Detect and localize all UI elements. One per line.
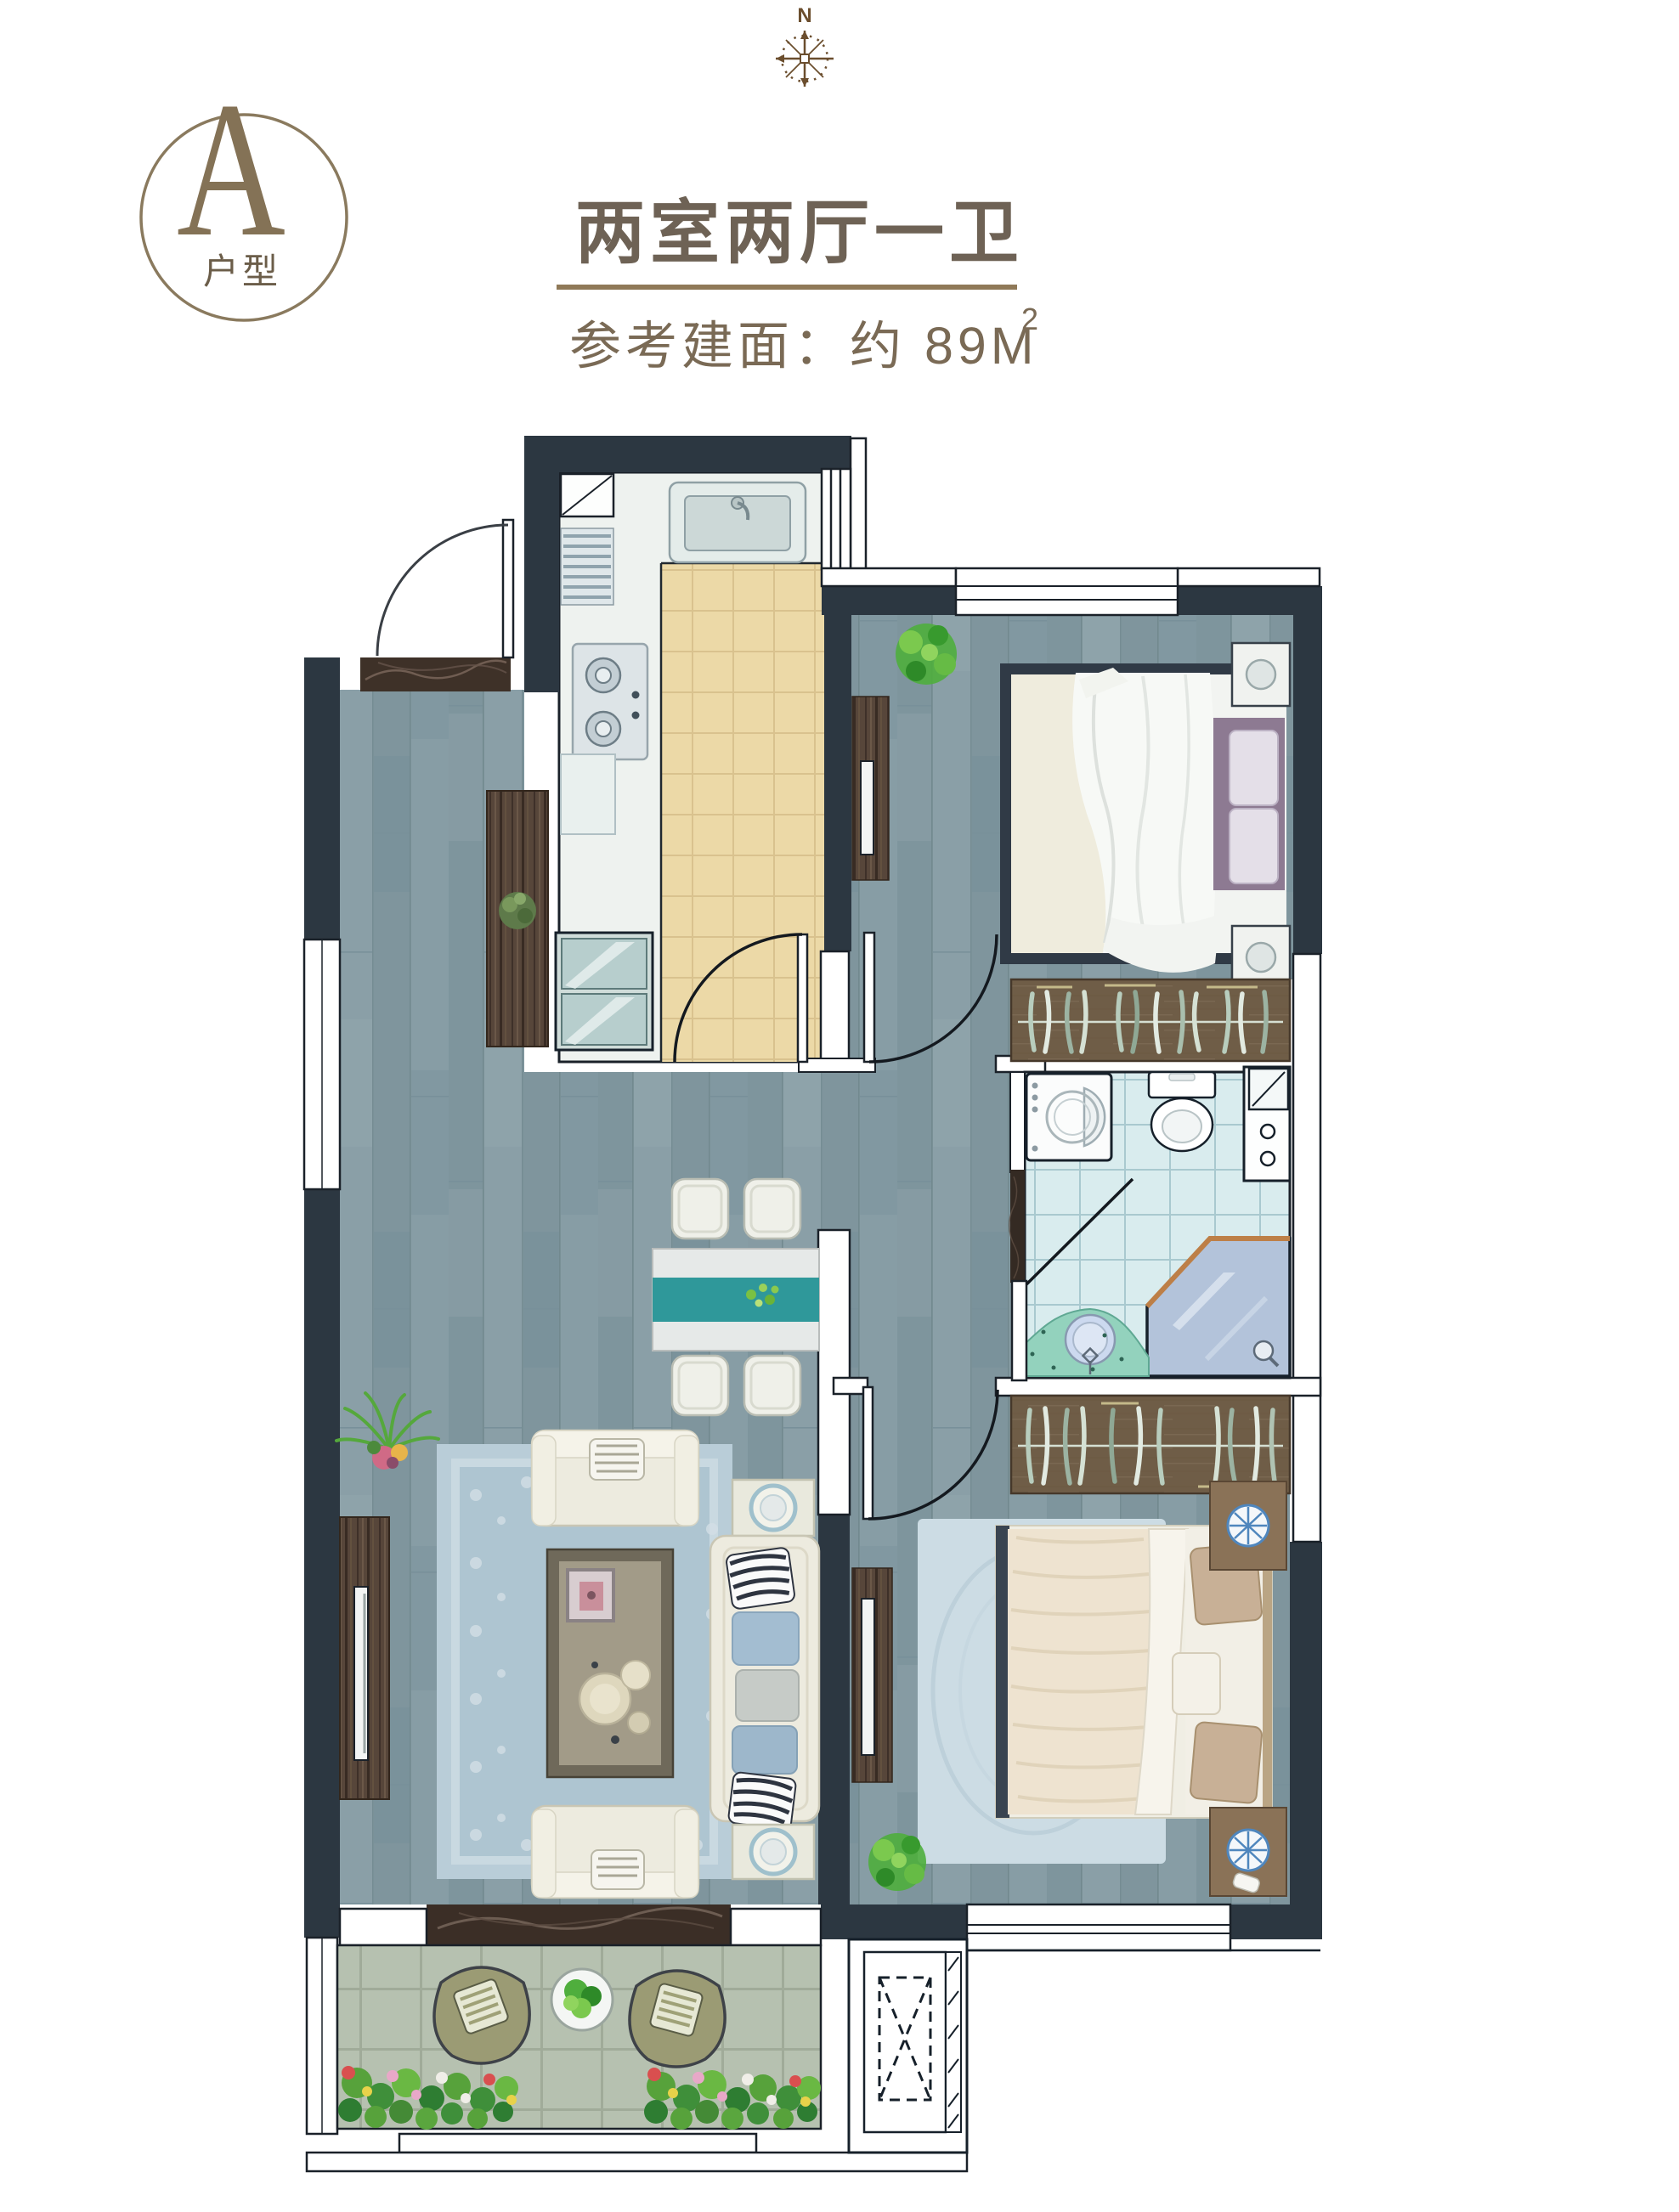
svg-text:2: 2 <box>1021 302 1038 336</box>
svg-text:两室两厅一卫: 两室两厅一卫 <box>575 195 1024 272</box>
svg-text:参考建面：约 89M: 参考建面：约 89M <box>569 317 1038 375</box>
svg-text:A: A <box>177 63 285 277</box>
svg-text:N: N <box>797 4 811 27</box>
svg-text:户型: 户型 <box>203 251 281 291</box>
